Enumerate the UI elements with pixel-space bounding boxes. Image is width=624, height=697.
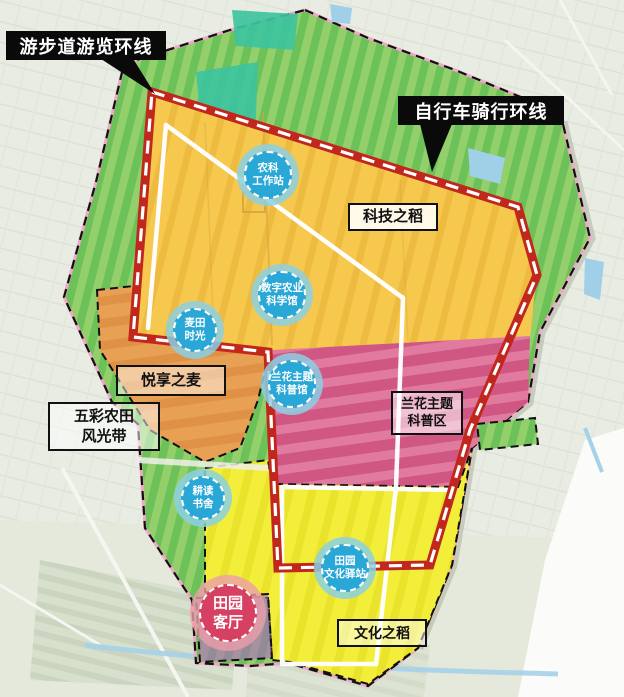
poi-marker-orchid-museum: 兰花主题 科普馆 (261, 353, 323, 415)
poi-label-digital-agri-museum: 数字农业 科学馆 (258, 271, 305, 318)
poi-marker-farm-science-station: 农科 工作站 (237, 144, 299, 206)
highlight-marker-living-room: 田园 客厅 (190, 575, 266, 651)
poi-label-wheat-field-time: 麦田 时光 (173, 308, 217, 352)
zone-label-colorful-farm: 五彩农田 风光带 (48, 402, 160, 451)
poi-marker-pastoral-post: 田园 文化驿站 (314, 537, 376, 599)
poi-label-pastoral-post: 田园 文化驿站 (321, 544, 368, 591)
zone-label-tech-rice: 科技之稻 (348, 203, 438, 231)
poi-label-orchid-museum: 兰花主题 科普馆 (268, 360, 315, 407)
callout-walking-loop: 游步道游览环线 (6, 31, 166, 60)
poi-marker-wheat-field-time: 麦田 时光 (166, 301, 224, 359)
teal-patch-2 (232, 10, 298, 50)
callout-cycling-loop: 自行车骑行环线 (398, 96, 564, 125)
highlight-label-living-room: 田园 客厅 (199, 584, 257, 642)
poi-label-reading-house: 耕读 书舍 (181, 476, 225, 520)
poi-marker-digital-agri-museum: 数字农业 科学馆 (251, 264, 313, 326)
poi-marker-reading-house: 耕读 书舍 (174, 469, 232, 527)
poi-label-farm-science-station: 农科 工作站 (244, 151, 291, 198)
zone-label-orchid-zone: 兰花主题 科普区 (391, 391, 463, 435)
zone-label-culture-rice: 文化之稻 (337, 619, 427, 647)
zone-label-wheat-joy: 悦享之麦 (116, 365, 226, 396)
site-plan-map: 游步道游览环线 自行车骑行环线 科技之稻 悦享之麦 五彩农田 风光带 兰花主题 … (0, 0, 624, 697)
